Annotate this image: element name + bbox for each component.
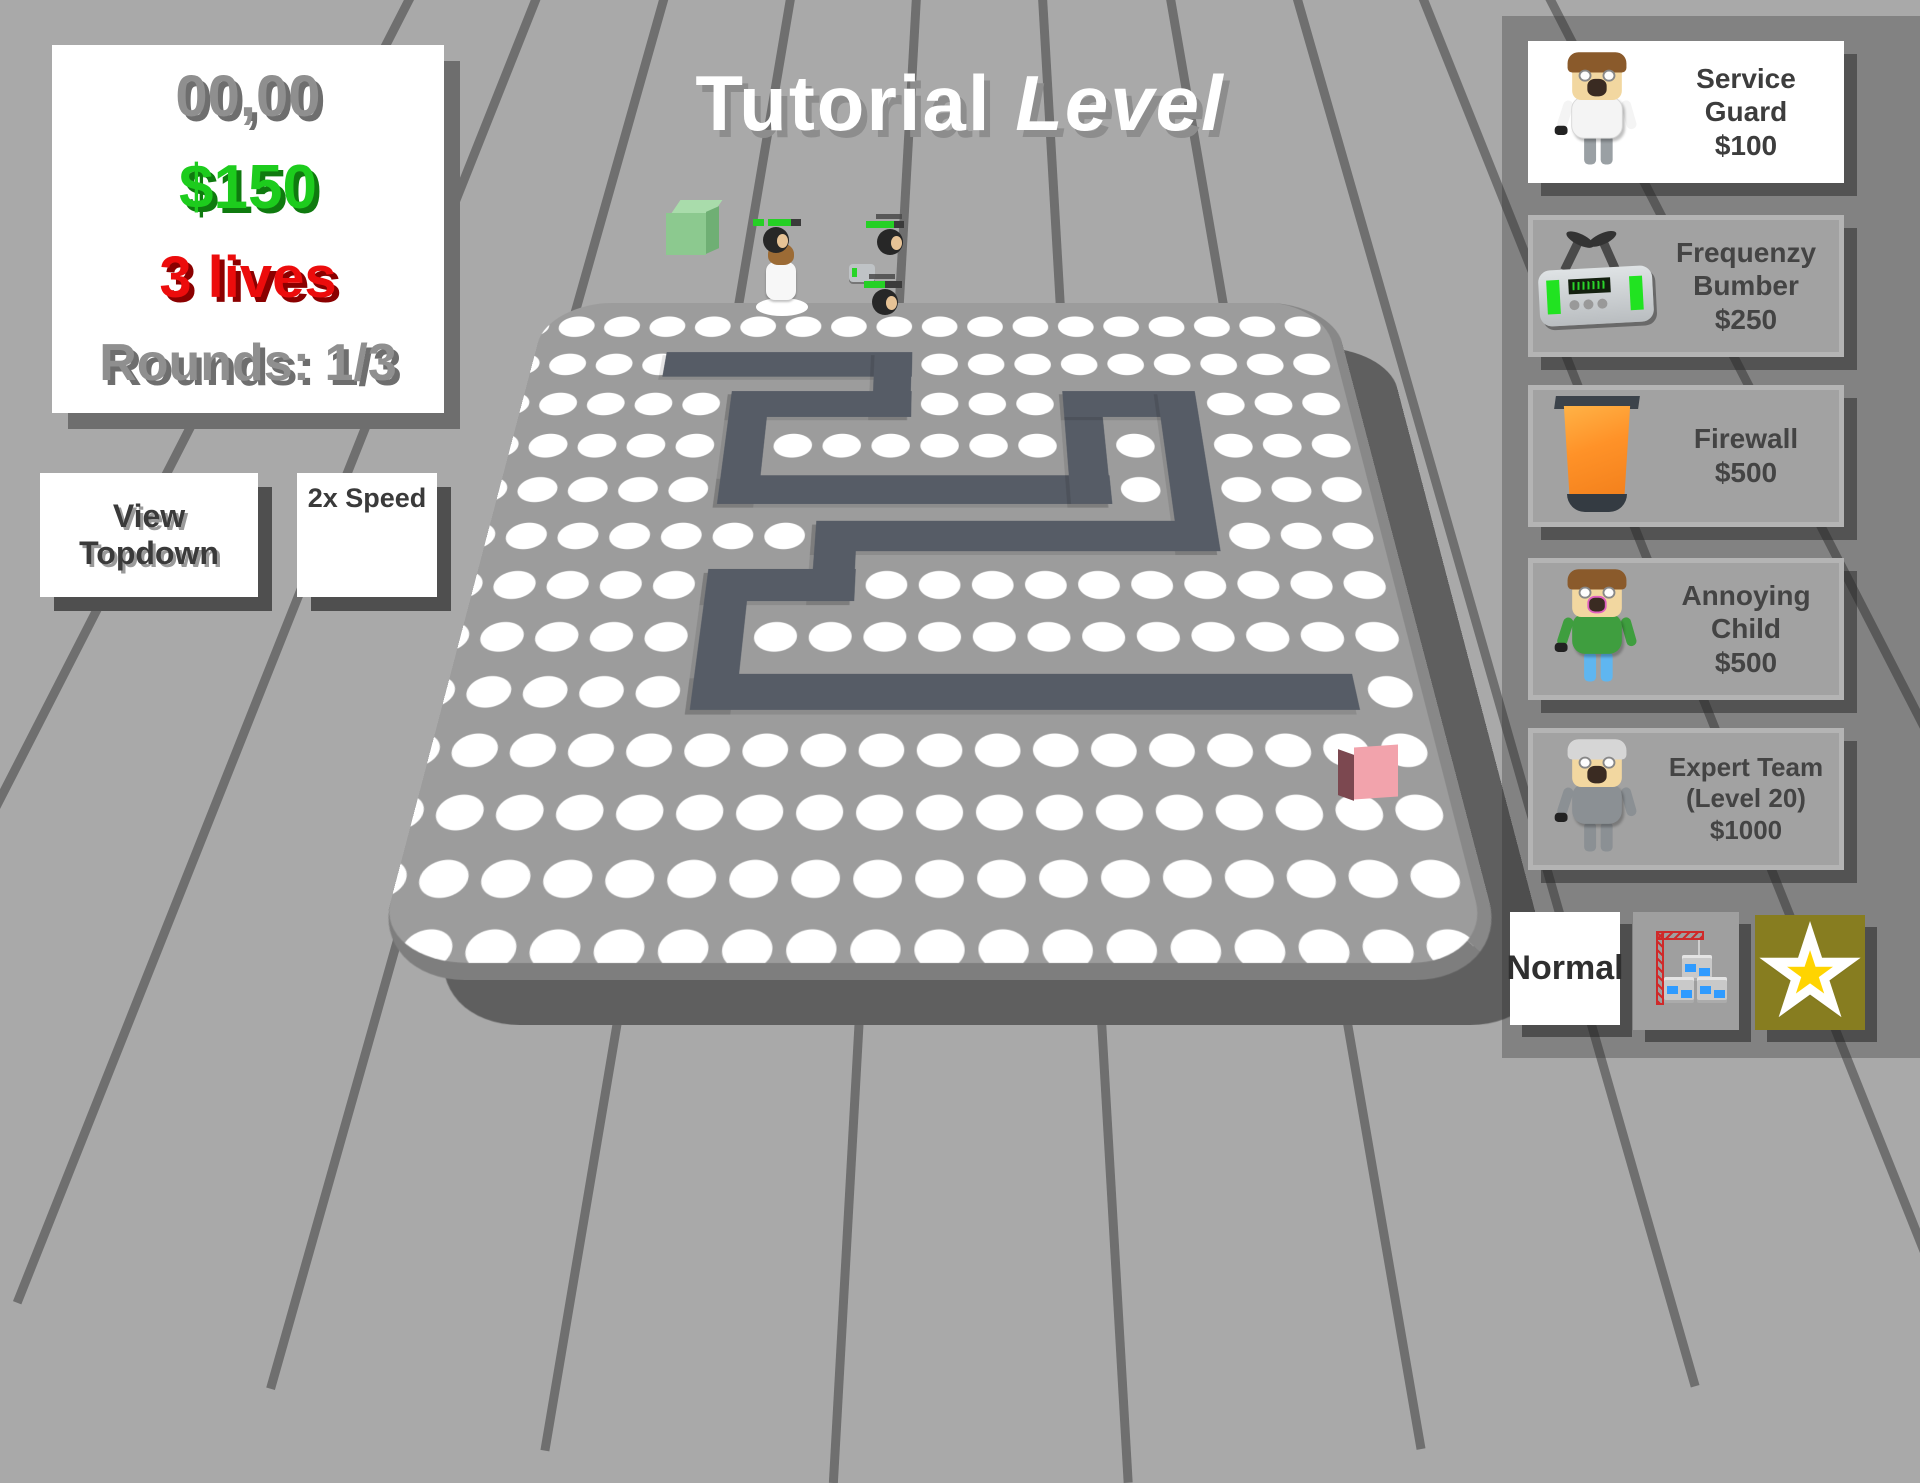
tower-base-dot	[756, 298, 808, 316]
game-screen: { "title": {"regular": "Tutorial ", "ita…	[0, 0, 1920, 1080]
shop-item-service-guard[interactable]: Service Guard $100	[1528, 41, 1844, 183]
firewall-bin	[1533, 396, 1661, 516]
stats-panel: 00,00 $150 3 lives Rounds: 1/3	[52, 45, 444, 413]
shop-item-name: Frequenzy Bumber	[1661, 236, 1831, 303]
favorite-star-button[interactable]: ★	[1755, 915, 1865, 1030]
expert-team-figure	[1533, 738, 1661, 860]
shop-item-price: $100	[1661, 129, 1831, 163]
enemy-sprite	[872, 289, 898, 315]
shop-item-price: $500	[1661, 646, 1831, 680]
shop-item-name: Service Guard	[1661, 62, 1831, 129]
shop-item-annoying-child[interactable]: Annoying Child $500	[1528, 558, 1844, 700]
shop-item-frequenzy-bumber[interactable]: Frequenzy Bumber $250	[1528, 215, 1844, 357]
rounds-text: Rounds: 1/3	[58, 333, 438, 393]
enemy-health-bar	[864, 281, 902, 288]
shop-item-name: Firewall	[1661, 422, 1831, 456]
speed-2x-button[interactable]: 2x Speed	[297, 473, 437, 597]
difficulty-normal-button[interactable]: Normal	[1510, 912, 1620, 1025]
shop-item-firewall[interactable]: Firewall $500	[1528, 385, 1844, 527]
level-title: Tutorial Level	[695, 58, 1224, 149]
enemy-sprite	[877, 229, 903, 255]
shop-item-price: $250	[1661, 303, 1831, 337]
frequenzy-bumber-tower[interactable]	[849, 264, 875, 282]
shop-item-name: Annoying Child	[1661, 579, 1831, 646]
shop-item-price: $1000	[1661, 815, 1831, 846]
shop-item-expert-team[interactable]: Expert Team (Level 20) $1000	[1528, 728, 1844, 870]
service-guard-tower[interactable]	[766, 262, 796, 300]
crane-blocks-icon	[1642, 927, 1730, 1015]
enemy-sprite	[763, 227, 789, 253]
view-topdown-button[interactable]: View Topdown	[40, 473, 258, 597]
service-guard-figure	[1533, 51, 1661, 173]
shop-item-sub: (Level 20)	[1661, 783, 1831, 814]
shop-item-name: Expert Team	[1661, 752, 1831, 783]
enemy-health-bar	[866, 221, 904, 228]
annoying-child-figure	[1533, 568, 1661, 690]
shop-item-price: $500	[1661, 456, 1831, 490]
star-icon: ★	[1767, 925, 1853, 1021]
enemy-name-label	[869, 274, 895, 279]
frequenzy-bumber-device	[1533, 238, 1661, 334]
enemy-name-label	[876, 214, 902, 219]
score-text: 00,00	[58, 63, 438, 130]
pink-end-cube	[1338, 742, 1400, 804]
enemy-health-bar	[753, 219, 764, 226]
build-mode-button[interactable]	[1633, 912, 1739, 1030]
lives-text: 3 lives	[58, 244, 438, 311]
enemy-health-bar	[768, 219, 801, 226]
money-text: $150	[58, 152, 438, 223]
green-start-cube	[666, 200, 722, 258]
